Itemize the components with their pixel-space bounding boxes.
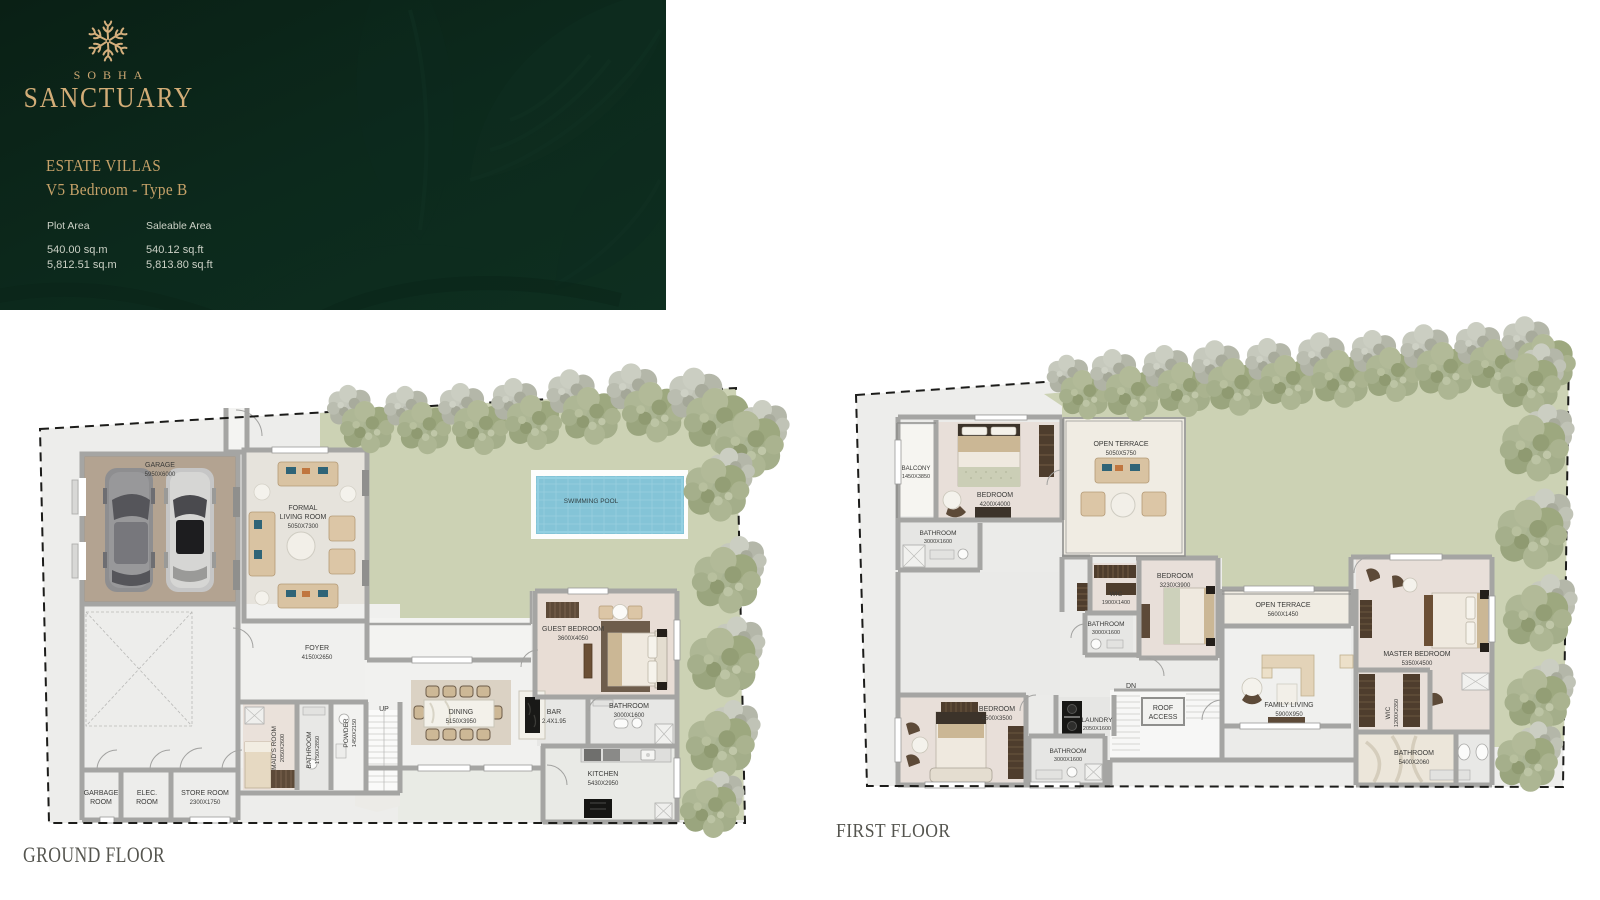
svg-text:1900X1400: 1900X1400 <box>1102 600 1130 606</box>
svg-text:KITCHEN: KITCHEN <box>588 771 619 778</box>
svg-text:5350X4500: 5350X4500 <box>1402 661 1433 667</box>
svg-text:POWDER: POWDER <box>343 718 350 748</box>
svg-text:BATHROOM: BATHROOM <box>1394 750 1434 757</box>
svg-text:LAUNDRY: LAUNDRY <box>1082 717 1114 724</box>
svg-text:2050X2600: 2050X2600 <box>280 734 286 762</box>
svg-text:MASTER BEDROOM: MASTER BEDROOM <box>1383 651 1450 658</box>
svg-text:BATHROOM: BATHROOM <box>919 530 956 537</box>
svg-text:3230X3900: 3230X3900 <box>1160 583 1191 589</box>
svg-text:SWIMMING POOL: SWIMMING POOL <box>564 498 619 505</box>
svg-text:BATHROOM: BATHROOM <box>1087 621 1124 628</box>
svg-text:WIC: WIC <box>1385 706 1392 719</box>
svg-text:5600X1450: 5600X1450 <box>1268 612 1299 618</box>
svg-text:3000X1600: 3000X1600 <box>614 713 645 719</box>
svg-text:GARBAGE: GARBAGE <box>84 790 119 797</box>
svg-text:DINING: DINING <box>449 709 474 716</box>
svg-text:WIC: WIC <box>1110 591 1123 598</box>
svg-text:1750X2850: 1750X2850 <box>315 736 321 764</box>
svg-text:5430X2950: 5430X2950 <box>588 781 619 787</box>
svg-text:BATHROOM: BATHROOM <box>1049 748 1086 755</box>
svg-text:ROOF: ROOF <box>1153 705 1173 712</box>
svg-text:2050X1600: 2050X1600 <box>1083 726 1111 732</box>
svg-text:ACCESS: ACCESS <box>1149 714 1178 721</box>
svg-text:4200X4000: 4200X4000 <box>980 502 1011 508</box>
svg-text:BEDROOM: BEDROOM <box>1157 573 1193 580</box>
svg-text:BEDROOM: BEDROOM <box>977 492 1013 499</box>
svg-text:4500X3500: 4500X3500 <box>982 716 1013 722</box>
svg-text:BATHROOM: BATHROOM <box>609 703 649 710</box>
svg-text:UP: UP <box>379 706 389 713</box>
svg-text:STORE ROOM: STORE ROOM <box>181 790 229 797</box>
svg-text:FAMILY LIVING: FAMILY LIVING <box>1264 702 1313 709</box>
svg-text:FORMAL: FORMAL <box>288 505 317 512</box>
svg-text:BAR: BAR <box>547 709 561 716</box>
svg-text:1200X2350: 1200X2350 <box>1394 699 1400 727</box>
svg-text:3000X1600: 3000X1600 <box>1092 630 1120 636</box>
svg-text:1450X3850: 1450X3850 <box>902 474 930 480</box>
svg-text:OPEN TERRACE: OPEN TERRACE <box>1093 441 1148 448</box>
svg-text:MAID'S ROOM: MAID'S ROOM <box>271 726 278 770</box>
svg-text:5050X5750: 5050X5750 <box>1106 451 1137 457</box>
svg-text:GUEST BEDROOM: GUEST BEDROOM <box>542 626 604 633</box>
svg-text:DN: DN <box>1126 683 1136 690</box>
svg-text:ROOM: ROOM <box>136 799 158 806</box>
svg-text:2.4X1.95: 2.4X1.95 <box>542 719 567 725</box>
svg-text:3000X1600: 3000X1600 <box>1054 757 1082 763</box>
svg-text:5050X7300: 5050X7300 <box>288 524 319 530</box>
svg-text:4150X2650: 4150X2650 <box>302 655 333 661</box>
svg-text:3000X1600: 3000X1600 <box>924 539 952 545</box>
svg-text:ELEC.: ELEC. <box>137 790 157 797</box>
svg-text:BALCONY: BALCONY <box>902 466 931 472</box>
svg-text:BATHROOM: BATHROOM <box>306 731 313 768</box>
svg-text:3600X4050: 3600X4050 <box>558 636 589 642</box>
svg-text:5150X3950: 5150X3950 <box>446 719 477 725</box>
svg-text:LIVING ROOM: LIVING ROOM <box>280 514 327 521</box>
svg-text:BEDROOM: BEDROOM <box>979 706 1015 713</box>
svg-text:FOYER: FOYER <box>305 645 329 652</box>
svg-text:5400X2060: 5400X2060 <box>1399 760 1430 766</box>
svg-text:1450X2150: 1450X2150 <box>352 719 358 747</box>
svg-text:ROOM: ROOM <box>90 799 112 806</box>
svg-text:GARAGE: GARAGE <box>145 462 175 469</box>
svg-text:5900X950: 5900X950 <box>1275 712 1303 718</box>
svg-text:5950X6000: 5950X6000 <box>145 472 176 478</box>
svg-text:2300X1750: 2300X1750 <box>190 800 221 806</box>
svg-text:OPEN TERRACE: OPEN TERRACE <box>1255 602 1310 609</box>
